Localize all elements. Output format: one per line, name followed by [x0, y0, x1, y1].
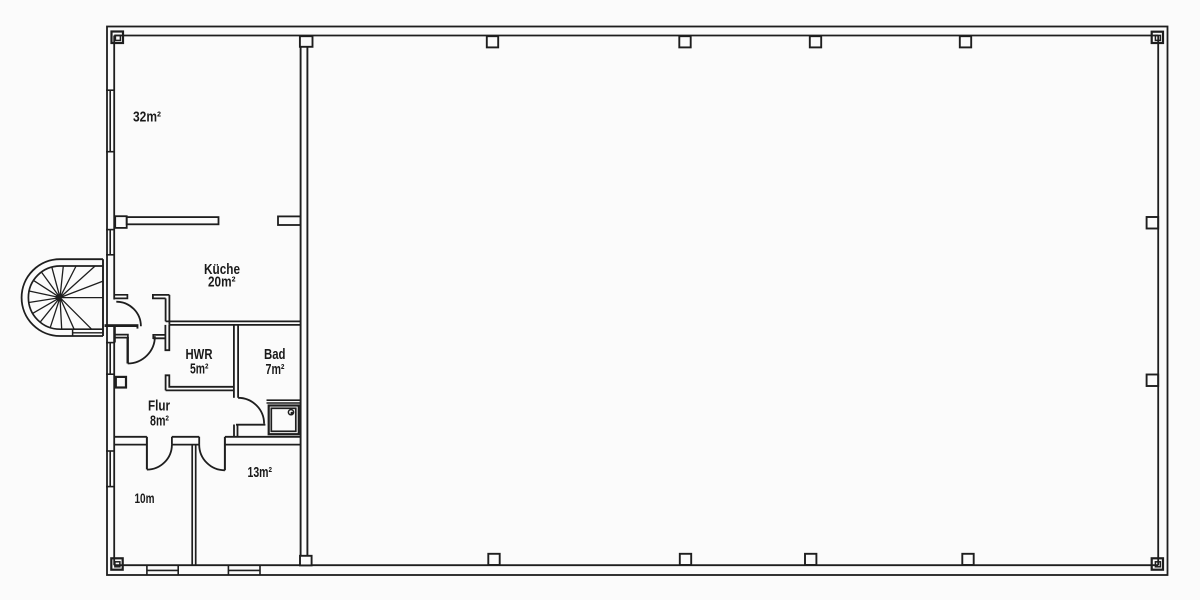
svg-text:Bad: Bad — [264, 347, 286, 363]
svg-text:8m²: 8m² — [150, 414, 169, 430]
svg-text:7m²: 7m² — [266, 362, 285, 378]
svg-text:13m²: 13m² — [248, 465, 273, 481]
svg-text:32m²: 32m² — [133, 110, 161, 126]
svg-text:Flur: Flur — [148, 399, 170, 415]
svg-text:10m: 10m — [135, 491, 155, 506]
svg-text:5m²: 5m² — [190, 362, 209, 378]
svg-text:20m²: 20m² — [208, 275, 236, 291]
